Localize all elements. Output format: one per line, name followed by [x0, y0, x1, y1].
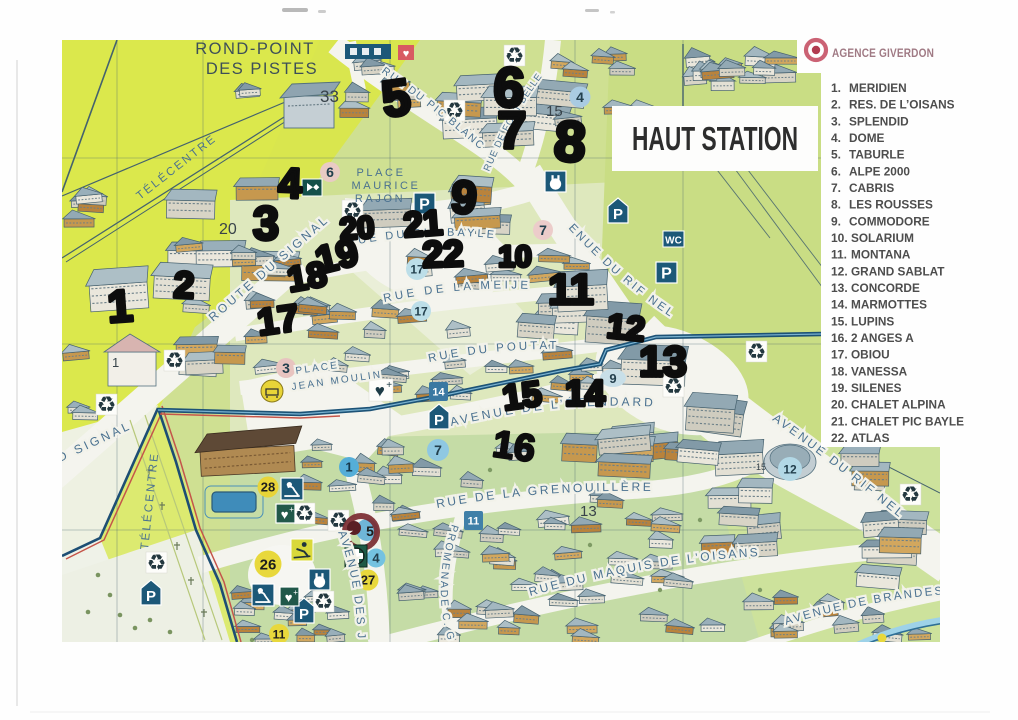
svg-text:P: P	[661, 265, 672, 282]
svg-text:20: 20	[339, 209, 376, 246]
svg-text:2 ANGES A: 2 ANGES A	[851, 331, 914, 345]
svg-text:SPLENDID: SPLENDID	[849, 114, 909, 128]
svg-text:HAUT STATION: HAUT STATION	[632, 120, 798, 157]
svg-text:♥: ♥	[285, 590, 293, 605]
svg-text:8.: 8.	[831, 198, 841, 212]
svg-text:WC: WC	[665, 236, 682, 247]
svg-text:RAJON: RAJON	[355, 193, 405, 205]
svg-text:PLACE: PLACE	[356, 167, 405, 179]
svg-text:7: 7	[498, 102, 527, 160]
svg-text:CONCORDE: CONCORDE	[851, 281, 920, 295]
svg-text:10.: 10.	[831, 231, 848, 245]
svg-text:♻: ♻	[314, 589, 334, 614]
svg-text:DES PISTES: DES PISTES	[206, 60, 318, 78]
svg-text:11: 11	[468, 515, 480, 527]
svg-text:♻: ♻	[165, 348, 185, 373]
svg-text:TABURLE: TABURLE	[849, 148, 905, 162]
svg-text:16: 16	[490, 423, 538, 470]
svg-text:2: 2	[173, 264, 196, 306]
svg-text:18.: 18.	[831, 364, 848, 378]
svg-text:13.: 13.	[831, 281, 848, 295]
svg-text:LUPINS: LUPINS	[851, 314, 894, 328]
svg-text:17.: 17.	[831, 348, 848, 362]
svg-text:4: 4	[372, 551, 380, 566]
svg-text:26: 26	[260, 556, 277, 573]
svg-text:6.: 6.	[831, 164, 841, 178]
svg-text:7: 7	[434, 442, 442, 458]
svg-text:9.: 9.	[831, 214, 841, 228]
svg-text:CABRIS: CABRIS	[849, 181, 894, 195]
svg-text:15: 15	[500, 374, 544, 418]
svg-text:CHALET PIC BAYLE: CHALET PIC BAYLE	[851, 414, 964, 428]
svg-text:1.: 1.	[831, 81, 841, 95]
svg-text:1: 1	[106, 280, 135, 333]
svg-text:RES. DE L’OISANS: RES. DE L’OISANS	[849, 98, 955, 112]
svg-text:♥: ♥	[375, 381, 385, 400]
svg-text:DOME: DOME	[849, 131, 885, 145]
svg-text:MERIDIEN: MERIDIEN	[849, 81, 907, 95]
svg-text:22: 22	[422, 233, 465, 275]
svg-text:14: 14	[565, 373, 605, 414]
svg-text:ROND-POINT: ROND-POINT	[195, 40, 315, 58]
svg-text:SILENES: SILENES	[851, 381, 902, 395]
svg-text:7: 7	[539, 222, 547, 238]
svg-text:12: 12	[783, 462, 797, 476]
svg-text:21.: 21.	[831, 414, 848, 428]
svg-text:1: 1	[345, 460, 352, 475]
svg-text:1: 1	[112, 355, 119, 370]
svg-text:♥: ♥	[281, 507, 289, 522]
svg-text:8: 8	[552, 109, 588, 175]
svg-text:SOLARIUM: SOLARIUM	[851, 231, 914, 245]
svg-text:20: 20	[219, 221, 237, 238]
svg-text:27: 27	[361, 573, 375, 588]
svg-text:♥: ♥	[403, 48, 410, 60]
svg-text:17: 17	[414, 304, 428, 318]
svg-text:14: 14	[432, 386, 445, 398]
svg-text:4.: 4.	[831, 131, 841, 145]
svg-text:11: 11	[273, 627, 286, 641]
svg-text:VANESSA: VANESSA	[851, 364, 908, 378]
svg-text:♻: ♻	[747, 339, 767, 364]
svg-text:COMMODORE: COMMODORE	[849, 214, 930, 228]
svg-text:17: 17	[255, 297, 301, 343]
svg-text:19.: 19.	[831, 381, 848, 395]
svg-text:9: 9	[449, 170, 479, 224]
svg-text:14.: 14.	[831, 298, 848, 312]
svg-text:♻: ♻	[901, 482, 921, 507]
svg-text:33: 33	[320, 87, 339, 106]
svg-text:MARMOTTES: MARMOTTES	[851, 298, 927, 312]
svg-text:16.: 16.	[831, 331, 848, 345]
svg-text:ALPE 2000: ALPE 2000	[849, 164, 910, 178]
svg-text:LES ROUSSES: LES ROUSSES	[849, 198, 933, 212]
svg-text:P: P	[613, 206, 623, 223]
svg-text:+: +	[293, 588, 298, 597]
svg-text:♻: ♻	[97, 392, 117, 417]
svg-text:MAURICE: MAURICE	[352, 180, 421, 192]
svg-text:+: +	[289, 505, 294, 514]
svg-text:3: 3	[253, 197, 279, 250]
svg-text:15.: 15.	[831, 314, 848, 328]
svg-text:3.: 3.	[831, 114, 841, 128]
svg-text:2.: 2.	[831, 98, 841, 112]
svg-text:20.: 20.	[831, 398, 848, 412]
svg-text:P: P	[146, 588, 156, 605]
svg-text:5: 5	[366, 523, 374, 539]
svg-text:4: 4	[278, 159, 304, 207]
svg-text:22.: 22.	[831, 431, 848, 445]
svg-text:11.: 11.	[831, 248, 847, 262]
svg-text:10: 10	[498, 241, 531, 274]
svg-text:P: P	[299, 606, 309, 623]
svg-text:9: 9	[609, 371, 616, 386]
svg-text:♻: ♻	[295, 501, 315, 526]
svg-text:AGENCE GIVERDON: AGENCE GIVERDON	[832, 46, 934, 60]
svg-text:28: 28	[261, 480, 275, 495]
svg-text:♻: ♻	[147, 550, 167, 575]
svg-text:15: 15	[756, 462, 766, 472]
svg-text:13: 13	[639, 338, 687, 386]
svg-text:P: P	[434, 412, 444, 429]
svg-text:OBIOU: OBIOU	[851, 348, 890, 362]
svg-text:13: 13	[580, 503, 597, 520]
svg-text:4: 4	[576, 89, 584, 105]
svg-text:MONTANA: MONTANA	[851, 248, 911, 262]
svg-text:6: 6	[326, 164, 334, 180]
svg-text:5.: 5.	[831, 148, 841, 162]
svg-text:GRAND SABLAT: GRAND SABLAT	[851, 264, 945, 278]
svg-text:ATLAS: ATLAS	[851, 431, 890, 445]
svg-text:7.: 7.	[831, 181, 841, 195]
svg-text:11: 11	[548, 266, 593, 314]
svg-text:3: 3	[282, 360, 290, 376]
svg-text:12.: 12.	[831, 264, 848, 278]
svg-text:CHALET ALPINA: CHALET ALPINA	[851, 398, 946, 412]
svg-text:+: +	[386, 380, 392, 391]
